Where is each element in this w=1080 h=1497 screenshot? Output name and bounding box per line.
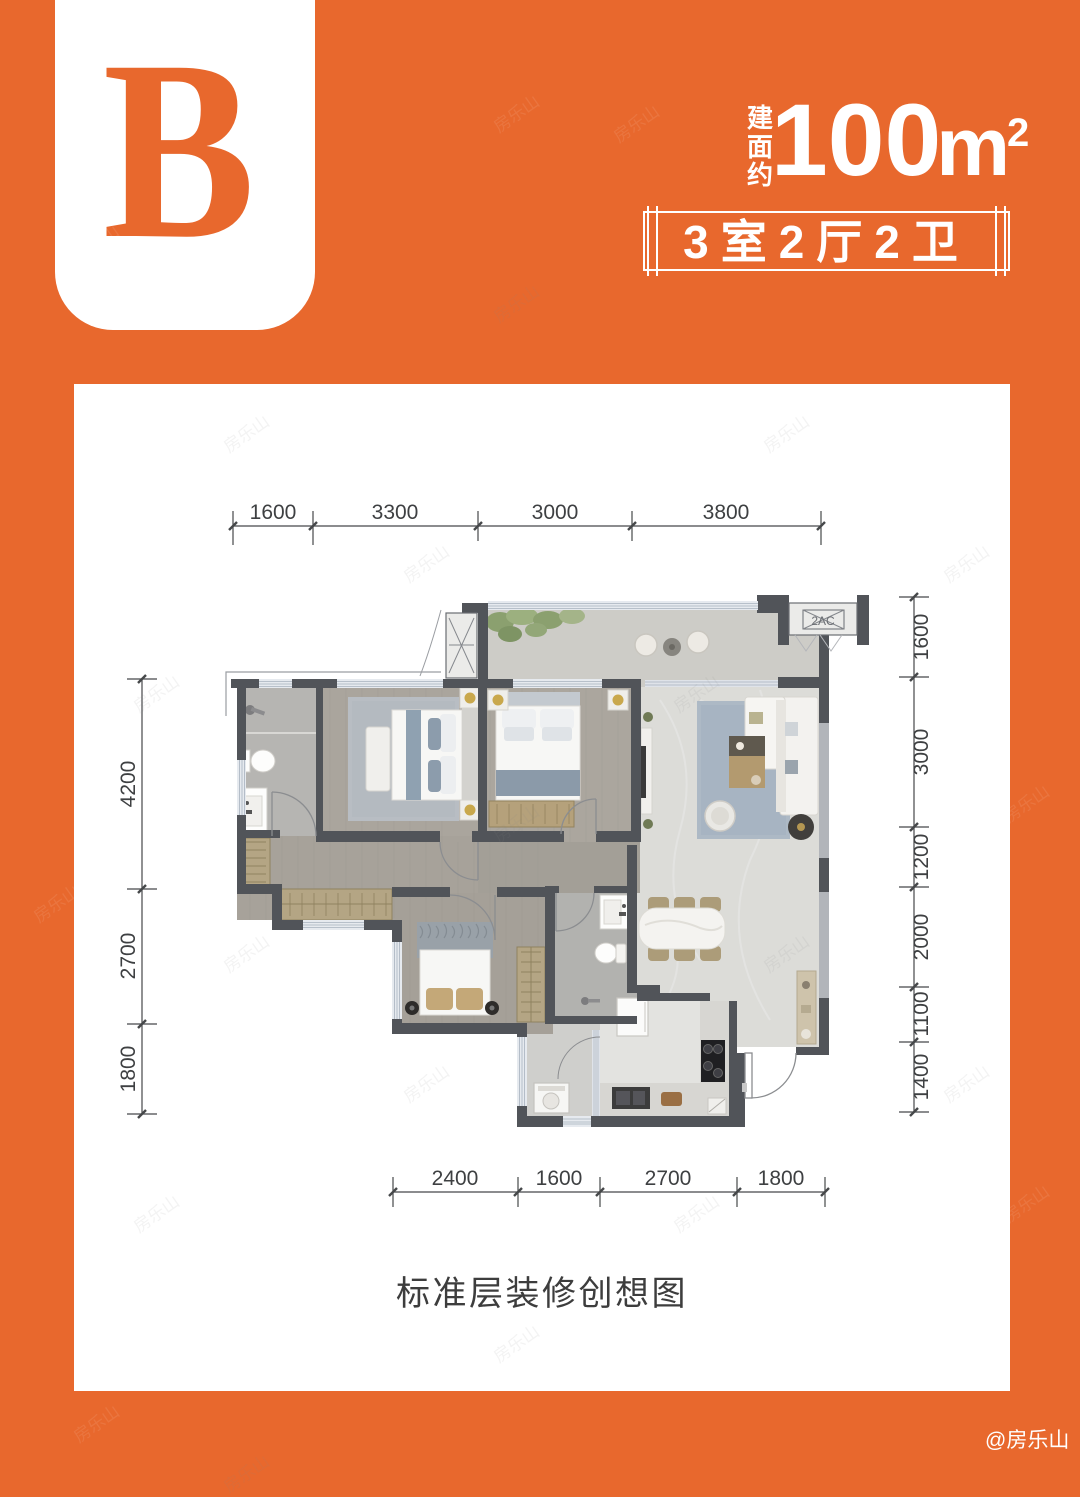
- svg-text:1200: 1200: [910, 834, 933, 881]
- svg-text:2700: 2700: [645, 1167, 692, 1190]
- svg-text:1100: 1100: [910, 991, 933, 1036]
- svg-text:1400: 1400: [910, 1054, 933, 1101]
- svg-text:1600: 1600: [250, 501, 297, 524]
- svg-text:1600: 1600: [910, 614, 933, 661]
- svg-text:3300: 3300: [372, 501, 419, 524]
- svg-text:3000: 3000: [532, 501, 579, 524]
- svg-text:2000: 2000: [910, 914, 933, 961]
- svg-text:3800: 3800: [703, 501, 750, 524]
- svg-text:1800: 1800: [758, 1167, 805, 1190]
- svg-text:3000: 3000: [910, 729, 933, 776]
- svg-text:2700: 2700: [117, 933, 140, 980]
- svg-text:1600: 1600: [536, 1167, 583, 1190]
- svg-text:1800: 1800: [117, 1046, 140, 1093]
- svg-text:2AC: 2AC: [811, 614, 835, 628]
- svg-text:2400: 2400: [432, 1167, 479, 1190]
- svg-text:4200: 4200: [117, 761, 140, 808]
